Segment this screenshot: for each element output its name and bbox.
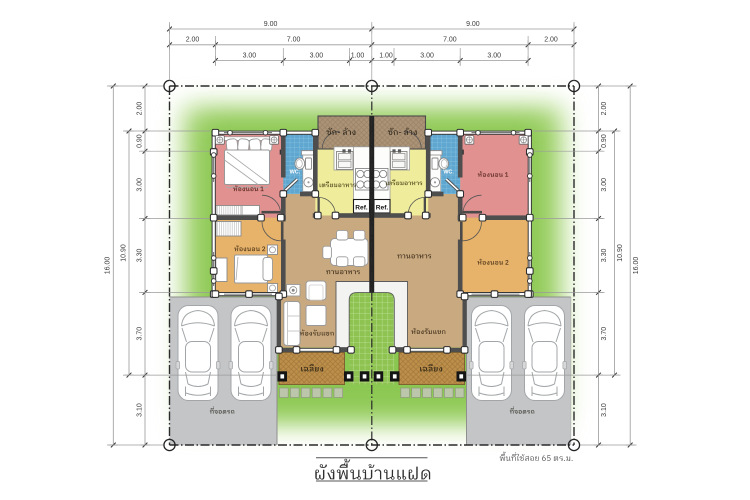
svg-text:3.00: 3.00 (420, 52, 434, 59)
svg-text:3.30: 3.30 (601, 248, 608, 262)
svg-text:2.00: 2.00 (544, 37, 558, 44)
svg-text:9.00: 9.00 (264, 21, 278, 28)
svg-text:3.30: 3.30 (136, 248, 143, 262)
svg-text:3.70: 3.70 (601, 327, 608, 341)
svg-text:3.00: 3.00 (487, 52, 501, 59)
svg-text:Ref.: Ref. (376, 204, 389, 211)
svg-text:3.10: 3.10 (601, 403, 608, 417)
svg-text:3.00: 3.00 (136, 178, 143, 192)
svg-text:1.00: 1.00 (379, 52, 393, 59)
svg-text:3.10: 3.10 (136, 403, 143, 417)
svg-text:16.00: 16.00 (105, 257, 112, 275)
svg-text:2.00: 2.00 (601, 102, 608, 116)
svg-text:WC.: WC. (443, 170, 454, 176)
svg-text:10.90: 10.90 (120, 244, 127, 262)
svg-text:3.00: 3.00 (601, 178, 608, 192)
svg-text:0.90: 0.90 (136, 134, 143, 148)
svg-text:3.00: 3.00 (310, 52, 324, 59)
svg-text:7.00: 7.00 (287, 37, 301, 44)
svg-text:2.00: 2.00 (186, 37, 200, 44)
svg-text:2.00: 2.00 (136, 102, 143, 116)
svg-text:10.90: 10.90 (617, 244, 624, 262)
svg-text:16.00: 16.00 (633, 257, 640, 275)
svg-text:1.00: 1.00 (351, 52, 365, 59)
svg-text:3.00: 3.00 (243, 52, 257, 59)
svg-text:3.70: 3.70 (136, 327, 143, 341)
svg-text:Ref.: Ref. (355, 204, 368, 211)
svg-text:9.00: 9.00 (466, 21, 480, 28)
svg-text:0.90: 0.90 (601, 134, 608, 148)
svg-text:7.00: 7.00 (443, 37, 457, 44)
svg-text:WC.: WC. (290, 170, 301, 176)
